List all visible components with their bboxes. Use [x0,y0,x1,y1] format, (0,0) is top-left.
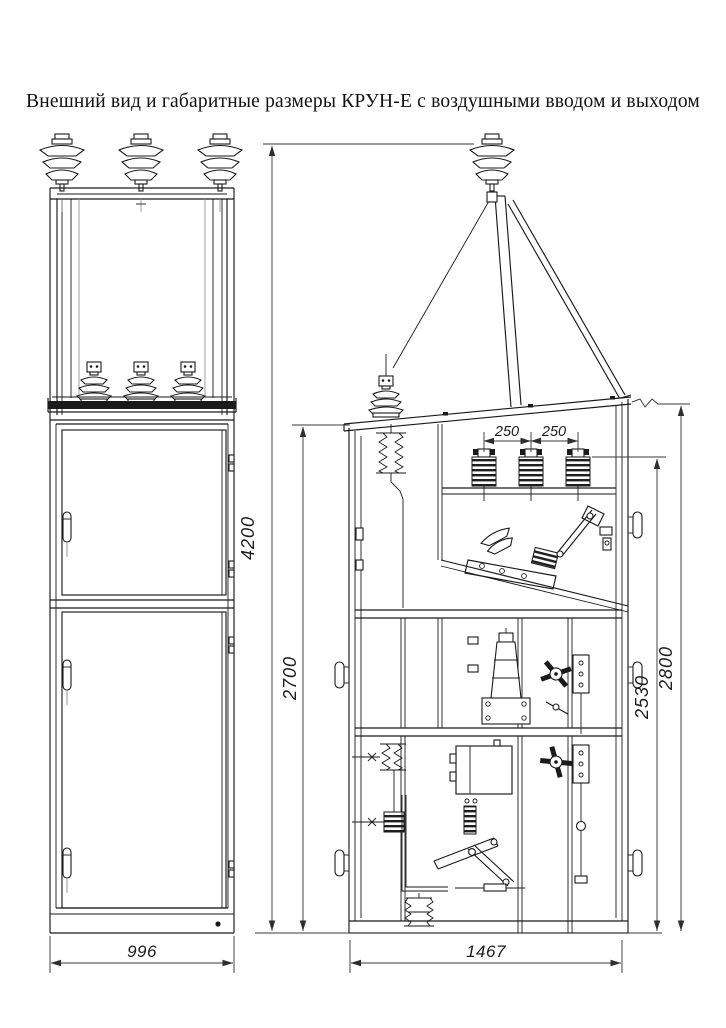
lever-mechanism [434,799,525,891]
bushing-icon [519,449,543,501]
bushing-icon [566,449,590,501]
surge-arrester [376,424,406,608]
front-lower-door [62,612,226,908]
insulator-icon [470,134,514,191]
bushing-icon [472,449,496,501]
side-view [335,134,642,933]
drive-mechanism [541,655,589,734]
front-top-insulators [40,134,242,191]
side-top-insulator [470,134,514,202]
star-handle-icon [540,747,571,778]
lower-drive [540,745,589,883]
side-roof-bushing [369,354,403,417]
side-handle-icon [628,850,642,876]
door-handle-icon [63,512,71,557]
dim-phase-spacing: 250 250 [484,424,578,452]
hinge-icon [229,455,234,471]
dim-depth-label: 1467 [466,942,506,961]
dim-depth: 1467 [350,940,622,973]
hinge-icon [229,637,234,653]
dim-phase-spacing-right-label: 250 [541,424,566,440]
left-coils [352,744,406,832]
cable-duct [402,795,448,891]
front-cabinet [50,420,234,933]
side-handle-icon [628,512,642,538]
side-handle-icon [335,850,349,876]
lower-compartment [352,740,589,926]
door-handle-icon [63,660,71,705]
dim-cabinet-height-label: 2700 [280,656,300,701]
dim-front-width: 996 [50,936,234,973]
front-view [40,134,242,933]
dim-bushing-height-label: 2530 [632,675,652,720]
middle-compartment [468,628,589,734]
support-post [495,196,521,407]
relay-box [450,740,512,794]
hinge-icon [229,561,234,577]
dimensions: 4200 2700 2530 2800 [50,144,690,973]
insulator-icon [40,134,84,191]
drive-plate [573,655,589,693]
insulator-icon [198,134,242,191]
side-handle-icon [335,662,349,688]
air-conductor [393,201,489,368]
drive-plate [573,745,589,783]
technical-drawing: 4200 2700 2530 2800 [0,0,726,1028]
insulator-icon [119,134,163,191]
dim-roof-height-label: 2800 [656,646,676,691]
bushing-icon [369,376,403,417]
phase-bushings [472,449,590,501]
star-handle-icon [541,662,571,686]
door-handle-icon [63,848,71,893]
diagonal-strut [508,200,631,401]
dim-overall-height-label: 4200 [238,516,258,560]
cone-insulator [468,628,530,724]
dim-phase-spacing-left-label: 250 [494,424,519,440]
disconnector-mechanism [465,506,604,589]
hinge-icon [229,861,234,877]
door-latch [600,527,612,550]
front-upper-door [62,430,226,595]
base-bolt [215,921,220,926]
dim-front-width-label: 996 [127,942,157,961]
upper-compartment [376,424,612,608]
drawing-page: Внешний вид и габаритные размеры КРУН-Е … [0,0,726,1028]
